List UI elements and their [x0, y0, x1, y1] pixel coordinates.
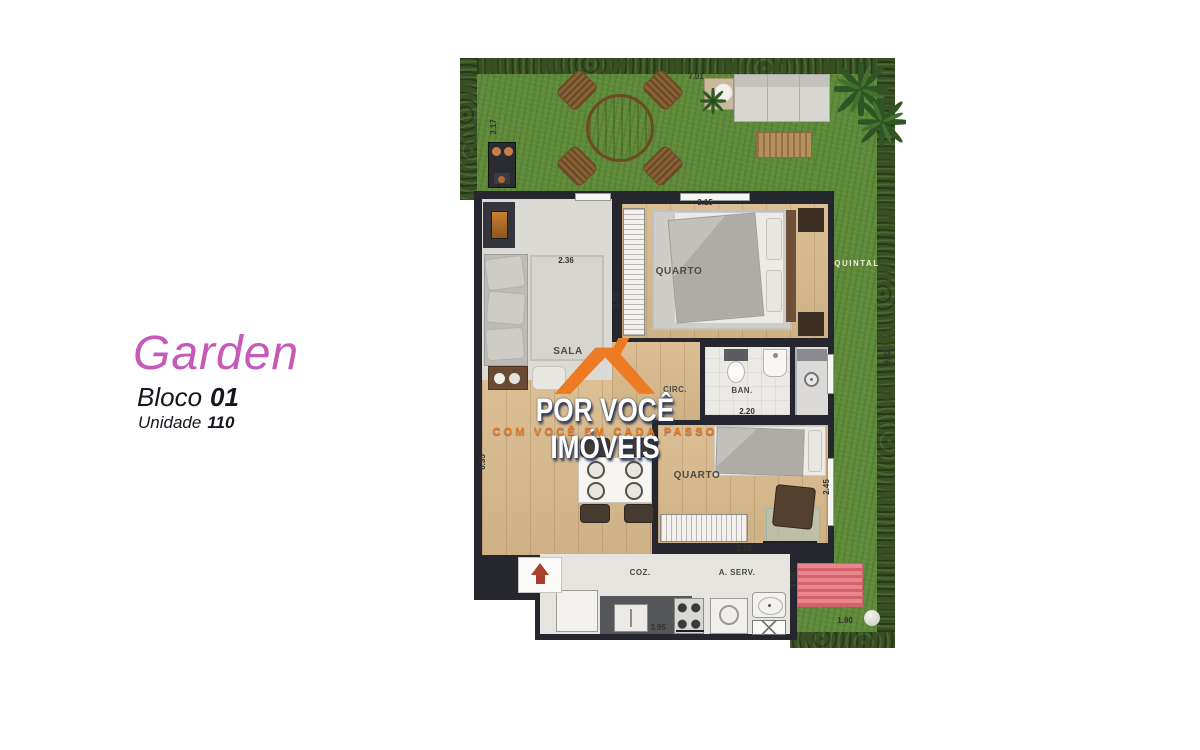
dining-chair	[580, 504, 610, 523]
tv-cabinet	[491, 211, 508, 239]
arrow-stem	[536, 575, 545, 584]
faucet-icon	[773, 353, 778, 358]
washer-lid-icon	[719, 605, 739, 625]
project-name: Garden	[133, 326, 299, 381]
block-line: Bloco01	[137, 382, 239, 413]
dim-sala-width: 2.36	[546, 256, 586, 266]
block-label: Bloco	[137, 382, 202, 412]
dim-pergola-height: 1.55	[789, 565, 799, 595]
laundry-tank	[752, 592, 786, 618]
grill-burner	[492, 147, 501, 156]
floor-plan-page: Garden Bloco01 Unidade110	[0, 0, 1200, 750]
watermark-tagline: COM VOCÊ EM CADA PASSO	[455, 426, 755, 438]
dim-wall-tv: 1.95	[611, 285, 621, 315]
unit-label: Unidade	[138, 413, 201, 432]
garden-round-table	[586, 94, 654, 162]
dimension-line	[676, 630, 704, 632]
sofa-cushion-divider	[767, 75, 768, 121]
grill-burner	[504, 147, 513, 156]
roof-logo-icon	[550, 338, 660, 396]
quarto1-wardrobe	[623, 208, 645, 336]
sala-tv-panel	[483, 202, 515, 248]
bathroom-sink	[763, 349, 787, 377]
quarto1-headboard	[786, 210, 796, 322]
dim-quarto1-width: 3.15	[685, 198, 725, 208]
room-label-quarto1: QUARTO	[648, 266, 710, 277]
dining-chair	[624, 504, 654, 523]
place-setting	[625, 482, 643, 500]
grill-knob	[498, 176, 505, 183]
pergola-roof	[797, 563, 863, 607]
sala-window	[575, 193, 611, 201]
quarto2-wardrobe	[660, 514, 748, 542]
room-label-quintal: QUINTAL	[827, 258, 887, 269]
shower-shelf	[797, 349, 827, 361]
garden-sofa	[734, 74, 830, 122]
dim-garden-left: 3.17	[489, 112, 499, 142]
dim-pergola-width: 1.90	[830, 616, 860, 626]
dim-coz-width: 3.95	[640, 623, 676, 633]
shower-head-icon	[804, 372, 819, 387]
faucet-icon	[630, 609, 632, 627]
unit-line: Unidade110	[138, 413, 234, 433]
block-number: 01	[210, 382, 239, 412]
quarto2-chair	[772, 484, 816, 530]
stove	[674, 598, 704, 634]
sofa-cushion	[484, 255, 526, 291]
palm-plant-icon	[858, 98, 906, 146]
quarto1-nightstand	[798, 312, 824, 336]
quarto2-pillow	[808, 430, 822, 472]
dim-quarto2-width: 3.15	[726, 544, 762, 554]
room-label-coz: COZ.	[612, 567, 668, 578]
bbq-grill	[488, 142, 516, 188]
service-screen	[752, 620, 786, 635]
sofa-cushion-divider	[799, 75, 800, 121]
garden-coffee-table	[756, 132, 812, 158]
sofa-back	[735, 75, 829, 87]
room-label-quarto2: QUARTO	[666, 470, 728, 481]
sofa-cushion	[486, 290, 527, 325]
dim-quintal-height: 9.82	[883, 342, 893, 372]
dim-garden-top: 7.01	[676, 72, 716, 82]
garden-ball	[864, 610, 880, 626]
quarto1-pillow	[766, 270, 782, 312]
dim-quarto2-height: 2.45	[822, 472, 832, 502]
arrow-head	[531, 563, 549, 575]
quarto1-pillow	[766, 218, 782, 260]
bathroom-window	[827, 354, 834, 394]
room-label-aserv: A. SERV.	[705, 567, 769, 578]
unit-number: 110	[207, 413, 234, 432]
hedge-left	[460, 58, 477, 200]
hedge-bottom	[790, 632, 895, 648]
fridge	[556, 590, 598, 632]
quarto1-nightstand	[798, 208, 824, 232]
washing-machine	[710, 598, 748, 634]
plant-icon	[700, 88, 726, 114]
dimension-line	[763, 541, 817, 543]
brand-watermark: POR VOCÊ IMÓVEIS COM VOCÊ EM CADA PASSO	[455, 338, 755, 443]
place-setting	[587, 482, 605, 500]
shower-dot	[810, 378, 813, 381]
entrance-arrow-icon	[530, 563, 550, 586]
tank-drain	[768, 604, 771, 607]
